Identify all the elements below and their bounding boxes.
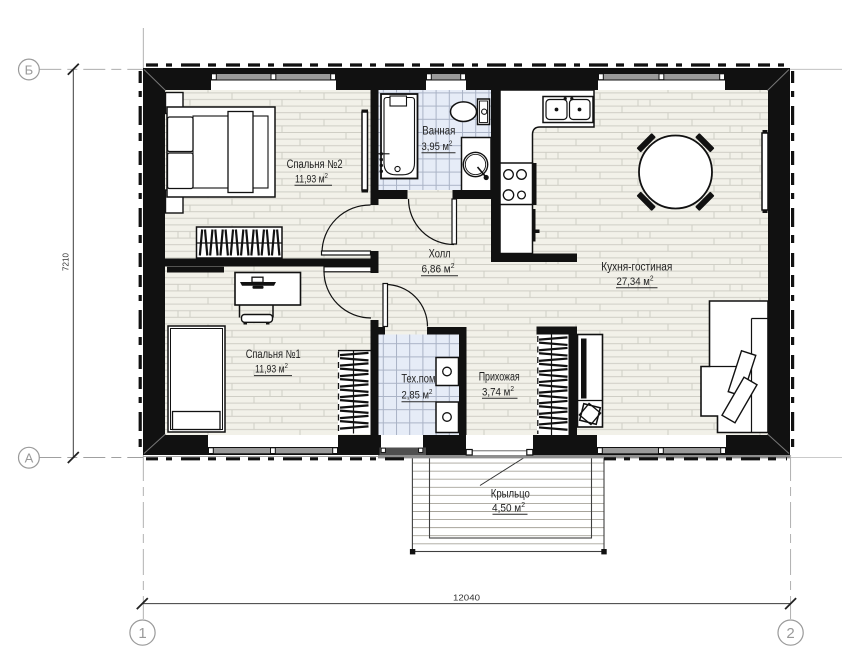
svg-text:11,93 м2: 11,93 м2 xyxy=(295,171,328,186)
svg-text:Кухня-гостиная: Кухня-гостиная xyxy=(601,262,672,274)
svg-text:12040: 12040 xyxy=(453,593,480,603)
svg-text:7210: 7210 xyxy=(61,253,71,271)
svg-text:2: 2 xyxy=(786,625,794,642)
svg-text:Крыльцо: Крыльцо xyxy=(491,489,530,501)
svg-text:27,34 м2: 27,34 м2 xyxy=(617,274,654,289)
svg-text:Ванная: Ванная xyxy=(422,126,455,138)
svg-text:4,50 м2: 4,50 м2 xyxy=(492,500,525,515)
svg-text:Спальня №1: Спальня №1 xyxy=(246,349,301,361)
svg-text:2,85 м2: 2,85 м2 xyxy=(402,387,433,402)
svg-text:А: А xyxy=(25,451,34,466)
svg-text:3,95 м2: 3,95 м2 xyxy=(422,139,453,154)
svg-text:Б: Б xyxy=(25,62,34,77)
svg-text:Спальня №2: Спальня №2 xyxy=(287,159,343,171)
svg-text:3,74 м2: 3,74 м2 xyxy=(482,384,514,399)
svg-text:Холл: Холл xyxy=(429,249,451,261)
svg-text:6,86 м2: 6,86 м2 xyxy=(422,261,455,276)
svg-text:11,93 м2: 11,93 м2 xyxy=(255,361,288,376)
svg-text:1: 1 xyxy=(138,625,146,642)
svg-text:Тех.пом: Тех.пом xyxy=(401,374,435,386)
svg-text:Прихожая: Прихожая xyxy=(479,372,520,384)
